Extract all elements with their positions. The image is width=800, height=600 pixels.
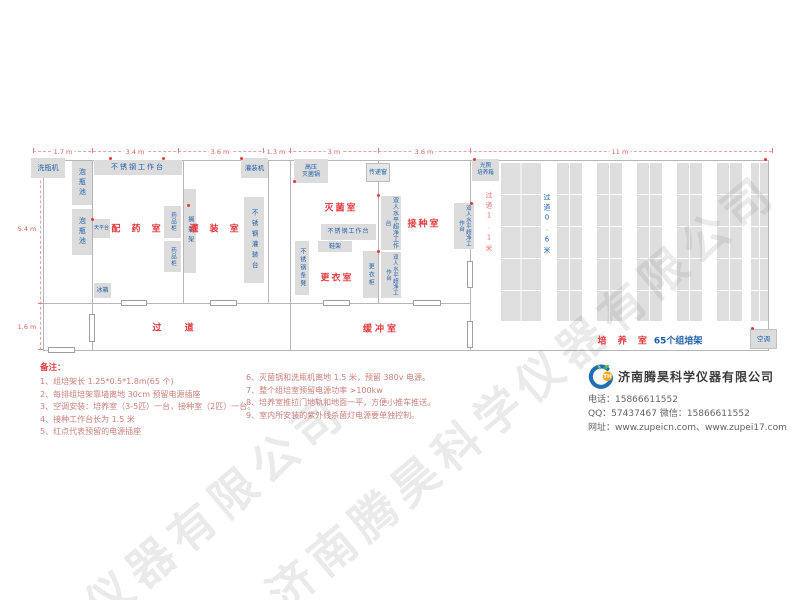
room-label-changing: 更衣室 (320, 271, 353, 284)
power-outlet-dot (377, 250, 380, 253)
dim-tick (470, 148, 471, 153)
equipment-bottle-washer: 洗瓶机 (31, 158, 65, 178)
room-label-sterilization: 灭菌室 (324, 201, 357, 214)
door-buffer-cultivation (467, 321, 473, 348)
wall-outer-right (768, 160, 769, 351)
floor-plan-sheet: 济南腾昊科学仪器有限公司 济南腾昊科学仪器有限公司 1.7 m 3.4 m 3.… (0, 0, 800, 600)
power-outlet-dot (470, 202, 473, 205)
company-logo-icon: TH (588, 364, 614, 390)
room-label-buffer: 缓冲室 (363, 322, 399, 335)
equipment-clean-bench-3: 双人水平超净工作台 (454, 203, 474, 249)
dim-tick (92, 148, 93, 153)
dim-label-1-3m: 1.3 m (265, 148, 288, 156)
company-logo-letters: TH (603, 374, 612, 380)
culture-rack-column (677, 163, 702, 321)
door-inoculation (413, 300, 441, 306)
room-label-filling: 灌 装 室 (189, 222, 242, 235)
door-filling (210, 300, 237, 306)
power-outlet-dot (293, 180, 296, 183)
power-outlet-dot (91, 218, 94, 221)
power-outlet-dot (473, 158, 476, 161)
wall-outer-bottom (43, 350, 768, 351)
power-outlet-dot (240, 157, 243, 160)
note-item-7: 7、整个组培室预留电源功率 >100kw (246, 385, 435, 398)
dim-label-3-6m-b: 3.6 m (413, 148, 436, 156)
left-dimension-line (40, 160, 41, 350)
equipment-soak-pool-2: 泡瓶池 (72, 209, 92, 255)
door-changing (323, 300, 350, 306)
equipment-stainless-bench: 不锈钢条凳 (295, 241, 309, 295)
notes-block-2: 6、灭菌锅和洗瓶机离地 1.5 米，预留 380v 电源。 7、整个组培室预留电… (246, 372, 435, 422)
equipment-autoclave: 高压 灭菌锅 (294, 159, 328, 183)
note-item-4: 4、接种工作台长为 1.5 米 (40, 414, 255, 427)
note-item-6: 6、灭菌锅和洗瓶机离地 1.5 米，预留 380v 电源。 (246, 372, 435, 385)
equipment-light-incubator: 光照 培养箱 (472, 159, 499, 181)
dim-tick (378, 148, 379, 153)
note-item-1: 1、组培架长 1.25*0.5*1.8m(65 个) (40, 376, 255, 389)
note-item-8: 8、培养室推拉门地轨和地面一平，方便小推车推送。 (246, 397, 435, 410)
power-outlet-dot (162, 157, 165, 160)
equipment-air-conditioner: 空调 (750, 329, 777, 349)
dim-label-11m: 11 m (610, 148, 631, 156)
power-outlet-dot (109, 157, 112, 160)
dim-tick (290, 148, 291, 153)
dim-tick (33, 148, 34, 153)
dim-label-3-6m-a: 3.6 m (209, 148, 232, 156)
room-label-inoculation: 接种室 (407, 217, 440, 230)
door-wash-corridor (89, 314, 95, 342)
dim-label-3m: 3 m (326, 148, 343, 156)
power-outlet-dot (187, 204, 190, 207)
cultivation-rack-count: 65个组培架 (654, 337, 703, 347)
door-entrance (48, 347, 75, 353)
equipment-clean-bench-1: 双人水平超净工作台 (381, 196, 401, 250)
equipment-stainless-workbench-mid: 不锈钢工作台 (321, 224, 376, 240)
company-name: 济南腾昊科学仪器有限公司 (618, 368, 774, 385)
wall-sterilization-left (290, 160, 291, 351)
note-item-3: 3、空调安装：培养室（3-5匹）一台，接种室（2匹）一台。 (40, 401, 255, 414)
aisle-label-1-1m: 过道1.1米 (484, 192, 494, 255)
aisle-label-0-6m: 过道0.6米 (542, 194, 552, 257)
wall-filling-right (268, 160, 269, 303)
notes-block: 备注： 1、组培架长 1.25*0.5*1.8m(65 个) 2、每排组培架靠墙… (40, 361, 255, 439)
equipment-medicine-cabinet-1: 药品柜 (164, 206, 181, 238)
equipment-pass-window: 传递窗 (366, 163, 390, 182)
power-outlet-dot (764, 158, 767, 161)
culture-rack-column (557, 163, 582, 321)
room-label-preparation: 配 药 室 (111, 222, 164, 235)
room-label-cultivation: 培 养 室65个组培架 (598, 334, 703, 347)
culture-rack-column (501, 163, 541, 321)
equipment-stainless-workbench-top: 不锈钢工作台 (94, 160, 182, 175)
company-block: TH 济南腾昊科学仪器有限公司 电话：15866611552 QQ：574374… (588, 364, 788, 434)
wall-outer-left (43, 160, 44, 351)
room-label-corridor: 过 道 (152, 321, 203, 334)
culture-rack-column (637, 163, 662, 321)
equipment-soak-pool-1: 泡瓶池 (72, 161, 92, 205)
cultivation-label: 培 养 室 (598, 337, 651, 347)
equipment-balance-table: 天平台 (93, 219, 110, 238)
culture-rack-column (717, 163, 742, 321)
equipment-medicine-cabinet-2: 药品柜 (164, 241, 181, 272)
note-item-9: 9、室内所安装的紫外线杀菌灯电源要单独控制。 (246, 410, 435, 423)
door-inoculation-cultivation (467, 261, 473, 288)
dim-tick (772, 148, 773, 153)
power-outlet-dot (377, 194, 380, 197)
culture-rack-column (597, 163, 622, 321)
dim-label-1-7m: 1.7 m (52, 148, 75, 156)
dim-tick (178, 148, 179, 153)
company-qq-wechat: QQ：57437467 微信：15866611552 (588, 406, 750, 419)
equipment-clean-bench-2: 双人水平超净工作台 (381, 252, 401, 298)
power-outlet-dot (751, 327, 754, 330)
wall-corridor-top (43, 303, 471, 304)
note-item-5: 5、红点代表预留的电源插座 (40, 426, 255, 439)
equipment-refrigerator: 冰箱 (94, 283, 111, 298)
door-preparation (121, 300, 147, 306)
equipment-shoe-rack: 鞋架 (318, 241, 352, 252)
equipment-filling-machine: 灌装机 (241, 158, 268, 178)
dim-label-3-4m: 3.4 m (124, 148, 147, 156)
notes-title: 备注： (40, 361, 255, 373)
culture-rack-column (751, 163, 768, 321)
note-item-2: 2、每排组培架靠墙离地 30cm 预留电源插座 (40, 389, 255, 402)
company-phone: 电话：15866611552 (588, 392, 678, 405)
equipment-locker: 更衣柜 (363, 251, 378, 298)
equipment-stainless-filling-table: 不锈钢灌装台 (244, 197, 264, 283)
dim-label-5-4m: 5.4 m (16, 225, 39, 233)
dim-label-1-6m: 1.6 m (16, 323, 39, 331)
company-website: 网址：www.zupeicn.com、www.zupei17.com (588, 420, 787, 433)
